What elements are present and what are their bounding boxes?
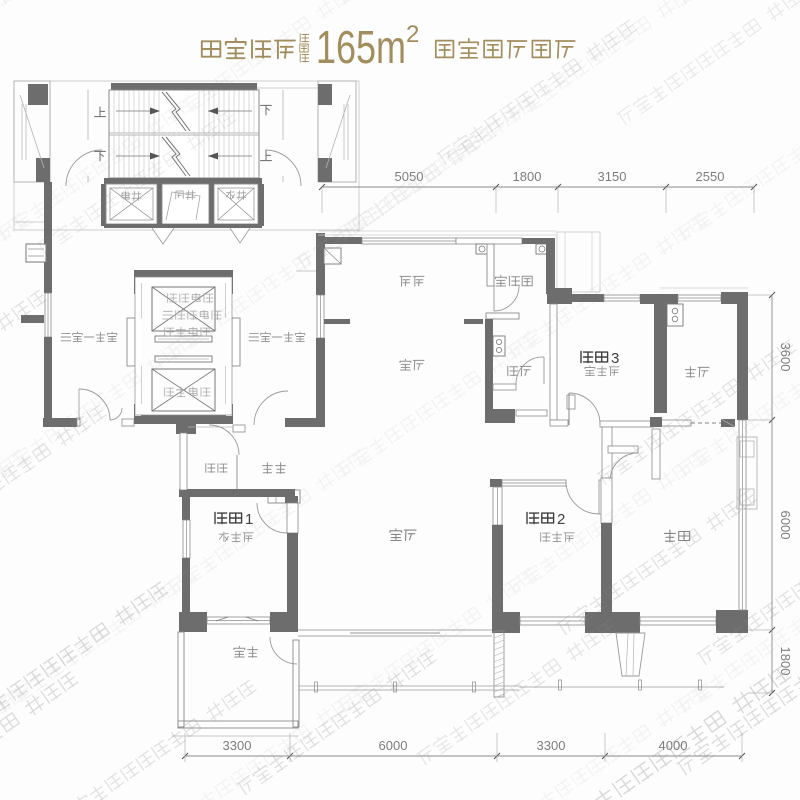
svg-text:1800: 1800 (778, 647, 793, 676)
svg-text:165m: 165m (316, 21, 406, 73)
svg-text:2: 2 (557, 511, 565, 528)
svg-text:2: 2 (406, 21, 419, 48)
svg-text:6000: 6000 (778, 511, 793, 540)
svg-text:2550: 2550 (696, 169, 725, 184)
svg-text:3300: 3300 (537, 738, 566, 753)
svg-text:3150: 3150 (598, 169, 627, 184)
svg-text:6000: 6000 (379, 738, 408, 753)
svg-text:1800: 1800 (513, 169, 542, 184)
svg-text:3: 3 (611, 350, 619, 367)
svg-text:5050: 5050 (395, 169, 424, 184)
svg-text:3300: 3300 (223, 738, 252, 753)
